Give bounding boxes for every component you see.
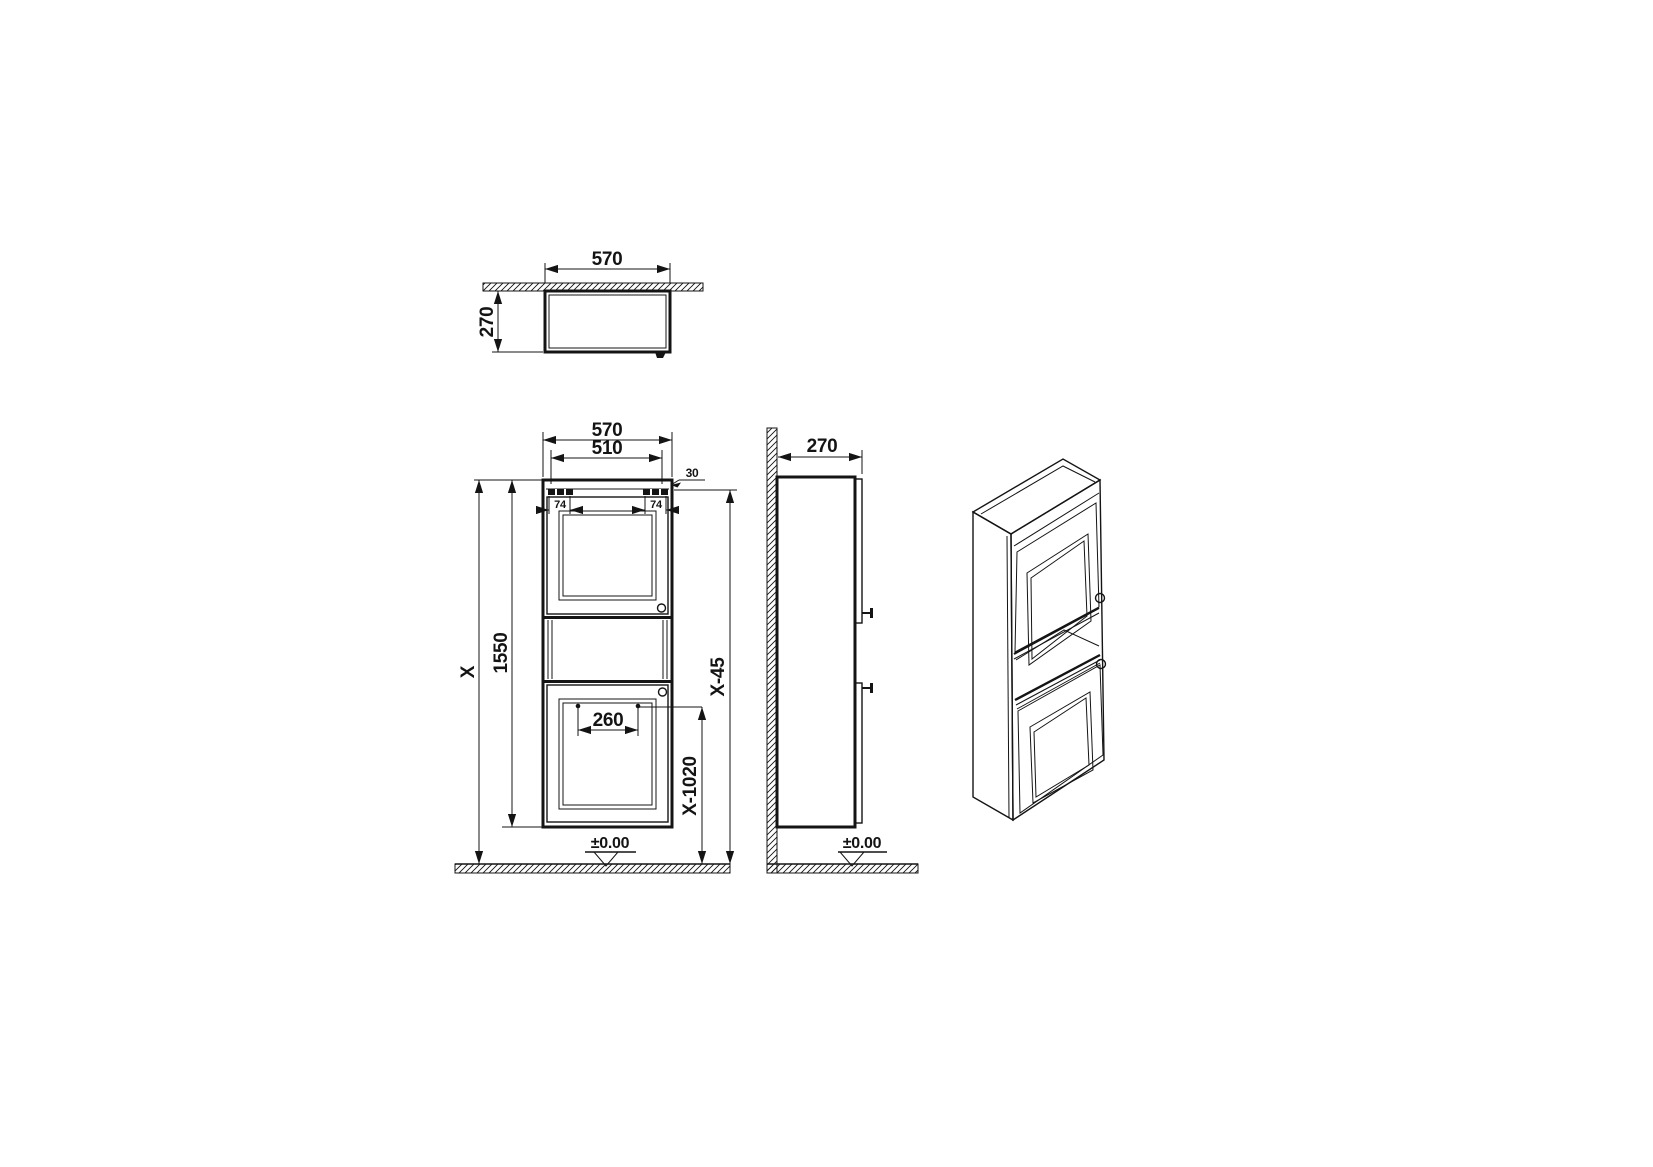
side-view: 270 ±0.00 bbox=[767, 428, 918, 873]
dim-side-depth: 270 bbox=[807, 436, 838, 457]
lower-handle-side bbox=[862, 683, 872, 693]
iso-lower-door bbox=[1017, 660, 1106, 814]
dim-bracket-left: 74 bbox=[554, 499, 567, 511]
hinge-mark bbox=[655, 352, 666, 358]
dim-side-depth-group: 270 bbox=[778, 436, 862, 474]
technical-drawing-canvas: 570 270 74 bbox=[0, 0, 1653, 1167]
upper-door-front bbox=[547, 497, 668, 614]
iso-upper-knob bbox=[1096, 594, 1105, 603]
dim-handle-spacing: 260 bbox=[593, 710, 624, 731]
datum-front-label: ±0.00 bbox=[591, 835, 630, 852]
dim-bracket-right: 74 bbox=[650, 499, 663, 511]
cabinet-front-outline bbox=[543, 480, 672, 827]
lower-door-knob bbox=[659, 688, 667, 696]
mounting-bracket-right bbox=[643, 489, 668, 495]
dim-handle-height: X-1020 bbox=[680, 756, 701, 815]
lower-door-front bbox=[547, 685, 668, 822]
top-view: 570 270 bbox=[477, 249, 703, 358]
floor-hatch-front bbox=[455, 864, 730, 873]
isometric-view bbox=[973, 459, 1106, 820]
floor-hatch-side bbox=[767, 864, 918, 873]
dim-top-offset-group: 30 bbox=[671, 466, 705, 488]
dim-total-height: X bbox=[458, 665, 479, 678]
cabinet-plan-inner-line bbox=[549, 295, 666, 348]
iso-front-face bbox=[1011, 480, 1104, 820]
dim-top-depth: 270 bbox=[477, 307, 498, 338]
drawing-page: 570 270 74 bbox=[0, 0, 1653, 1167]
dim-top-offset: 30 bbox=[686, 466, 699, 480]
dim-handle-height-group: X-1020 bbox=[638, 707, 702, 864]
dim-top-depth-group: 270 bbox=[477, 291, 543, 352]
dim-cabinet-height-group: 1550 bbox=[491, 480, 543, 827]
dim-handle-spacing-group: 260 bbox=[576, 704, 641, 736]
datum-side-group: ±0.00 bbox=[838, 835, 887, 866]
iso-open-shelf bbox=[1014, 608, 1100, 705]
open-shelf-front bbox=[543, 618, 672, 682]
iso-front-left-edge bbox=[1007, 536, 1009, 818]
dim-front-inner-width: 510 bbox=[592, 438, 623, 459]
front-view: 74 74 bbox=[455, 420, 737, 873]
iso-upper-door bbox=[1015, 503, 1105, 665]
upper-handle-side bbox=[862, 608, 872, 618]
datum-side-label: ±0.00 bbox=[843, 835, 882, 852]
cabinet-plan-outline bbox=[545, 291, 670, 352]
datum-front-group: ±0.00 bbox=[585, 835, 636, 866]
mounting-bracket-left bbox=[548, 489, 573, 495]
iso-door-top-gap bbox=[1014, 493, 1099, 546]
upper-door-knob bbox=[658, 604, 666, 612]
dim-upper-ref: X-45 bbox=[708, 657, 729, 697]
dim-top-width-group: 570 bbox=[545, 249, 670, 283]
dim-top-width: 570 bbox=[592, 249, 623, 270]
cabinet-side-outline bbox=[777, 477, 855, 827]
dim-front-inner-width-group: 510 bbox=[551, 438, 662, 484]
dim-cabinet-height: 1550 bbox=[491, 632, 512, 673]
